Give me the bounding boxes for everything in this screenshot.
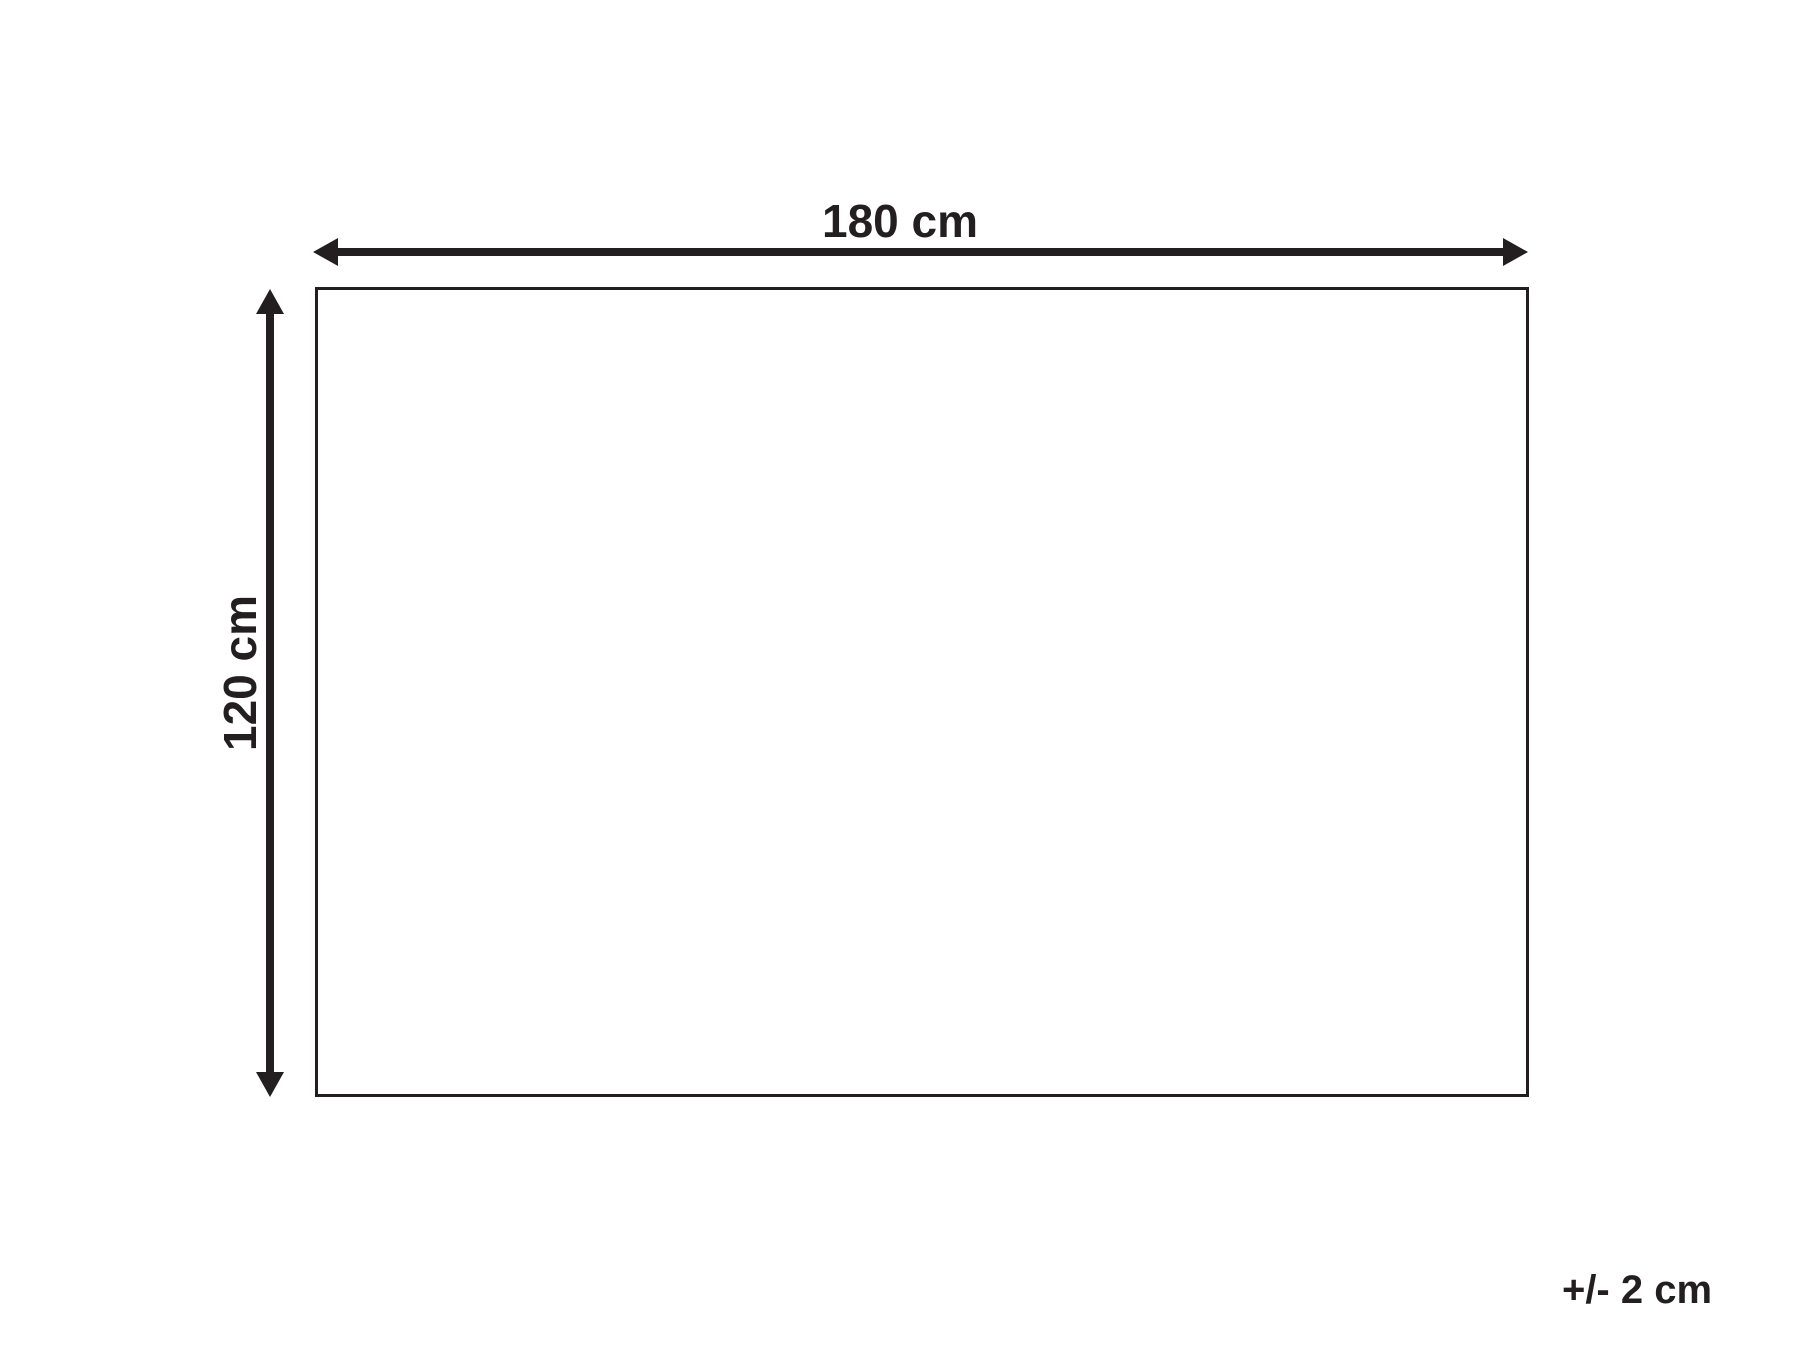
height-dimension-label: 120 cm: [217, 595, 263, 751]
arrow-down-head-icon: [256, 1072, 284, 1097]
arrow-right-head-icon: [1503, 238, 1528, 266]
arrow-up-head-icon: [256, 289, 284, 314]
arrow-left-head-icon: [313, 238, 338, 266]
dimension-diagram: 180 cm 120 cm +/- 2 cm: [0, 0, 1799, 1349]
tolerance-label: +/- 2 cm: [1562, 1270, 1712, 1310]
width-dimension-label: 180 cm: [822, 198, 978, 244]
